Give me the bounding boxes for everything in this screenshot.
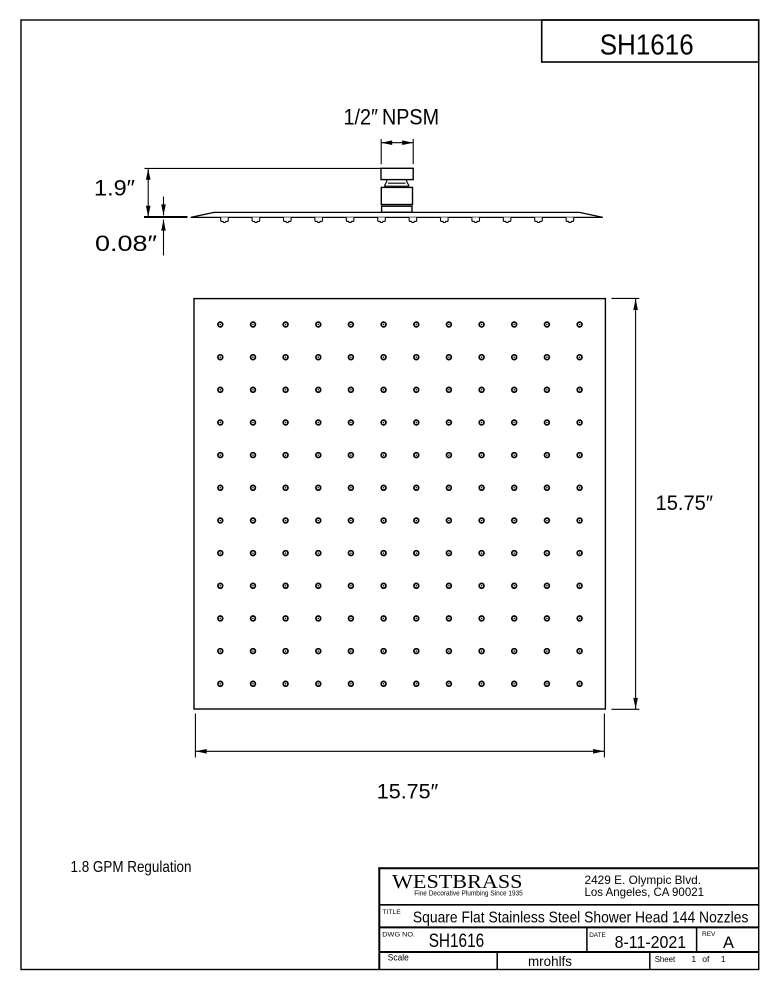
svg-text:1/2″ NPSM: 1/2″ NPSM <box>344 105 440 130</box>
svg-text:15.75″: 15.75″ <box>656 491 714 515</box>
svg-text:DWG NO.: DWG NO. <box>382 932 415 939</box>
svg-text:DATE: DATE <box>589 932 606 939</box>
svg-text:Scale: Scale <box>388 952 409 962</box>
svg-text:Fine Decorative Plumbing Since: Fine Decorative Plumbing Since 1935 <box>414 888 523 897</box>
svg-text:REV: REV <box>702 931 716 938</box>
svg-text:SH1616: SH1616 <box>429 931 485 952</box>
svg-text:1: 1 <box>721 954 726 964</box>
svg-text:mrohlfs: mrohlfs <box>528 953 572 969</box>
svg-text:A: A <box>723 934 734 952</box>
svg-text:8-11-2021: 8-11-2021 <box>615 932 687 952</box>
svg-text:1: 1 <box>691 954 696 964</box>
svg-text:1.8 GPM Regulation: 1.8 GPM Regulation <box>71 859 192 876</box>
svg-text:SH1616: SH1616 <box>600 30 694 62</box>
svg-text:0.08″: 0.08″ <box>95 231 157 256</box>
svg-text:Sheet: Sheet <box>655 954 676 964</box>
svg-text:Square Flat Stainless Steel Sh: Square Flat Stainless Steel Shower Head … <box>413 909 749 926</box>
svg-text:of: of <box>702 954 710 964</box>
svg-text:15.75″: 15.75″ <box>377 779 439 803</box>
svg-text:Los Angeles, CA 90021: Los Angeles, CA 90021 <box>585 886 705 899</box>
svg-text:1.9″: 1.9″ <box>94 175 135 200</box>
svg-text:TITLE: TITLE <box>383 909 402 916</box>
